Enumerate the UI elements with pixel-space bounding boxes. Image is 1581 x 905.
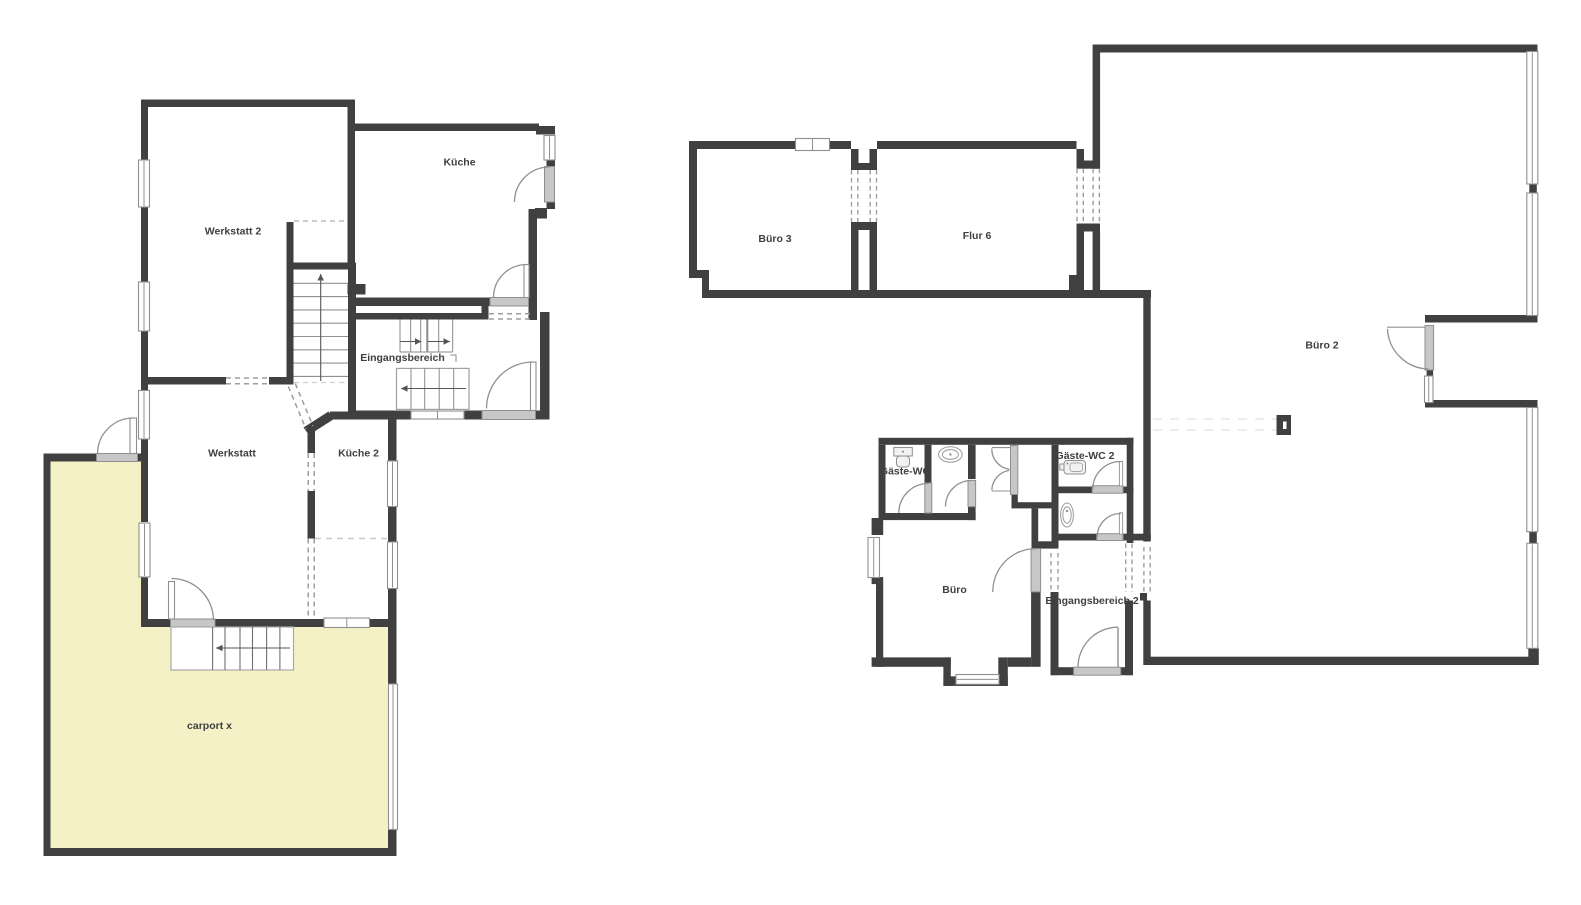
svg-text:Büro: Büro	[942, 584, 967, 596]
svg-text:Büro 2: Büro 2	[1305, 340, 1338, 352]
svg-text:Werkstatt 2: Werkstatt 2	[205, 226, 262, 238]
svg-text:carport x: carport x	[187, 720, 232, 732]
svg-text:Werkstatt: Werkstatt	[208, 448, 256, 460]
svg-text:Küche: Küche	[443, 157, 475, 169]
svg-text:Flur 6: Flur 6	[963, 230, 992, 242]
svg-text:Eingangsbereich 2: Eingangsbereich 2	[1045, 595, 1139, 607]
svg-text:Eingangsbereich: Eingangsbereich	[360, 352, 445, 364]
svg-text:Gäste-WC: Gäste-WC	[880, 466, 931, 478]
svg-text:Küche 2: Küche 2	[338, 448, 379, 460]
svg-text:Büro 3: Büro 3	[758, 233, 791, 245]
svg-text:Gäste-WC 2: Gäste-WC 2	[1056, 450, 1115, 462]
